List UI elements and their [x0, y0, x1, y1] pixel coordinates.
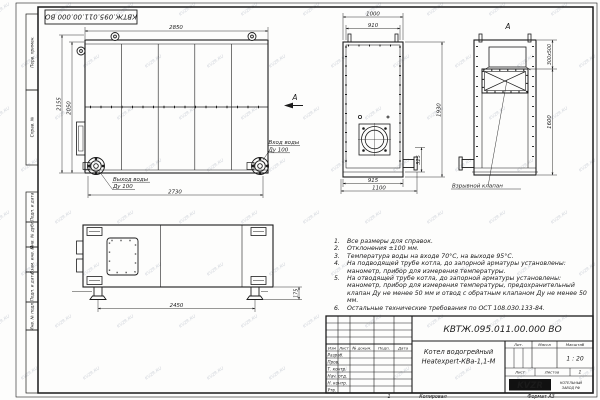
inlet-label-line2: Ду 100 — [268, 147, 289, 153]
tb-col-data: Дата — [397, 346, 409, 351]
tb-sheets-label: Листов — [544, 369, 560, 374]
dim-feet-height: 175 — [293, 289, 299, 298]
note-text: Остальные технические требования по ОСТ … — [343, 305, 591, 312]
note-text: Все размеры для справок. — [343, 238, 591, 245]
org-line2: ЗАВОД РФ — [562, 386, 580, 390]
tb-doc-number: КВТЖ.095.011.00.000 ВО — [443, 325, 561, 335]
tb-mass-label: Масса — [538, 342, 551, 347]
note-item: 1. Все размеры для справок. — [334, 238, 591, 245]
zone-number: 1 — [387, 394, 390, 400]
dim-bottom-span: 2450 — [170, 303, 184, 309]
tb-name-line2: Heatexpert-КВа-1,1-М — [422, 358, 496, 366]
view-a-label: А — [504, 22, 510, 31]
note-item: 4. На подводящей трубе котла, до запорно… — [334, 260, 591, 275]
tb-col-doc: № докум. — [351, 346, 371, 351]
side-view: 1000 910 1930 325 915 1100 — [341, 11, 445, 194]
note-number: 5. — [334, 275, 343, 305]
tb-row-nachotd: Нач. отд. — [328, 374, 348, 379]
tb-lit-label: Лит. — [513, 342, 523, 347]
doc-ref-number: КВТЖ.095.011.00.000 ВО — [45, 12, 138, 20]
outlet-label-line1: Выход воды — [113, 177, 149, 183]
view-a-pipe — [459, 157, 474, 170]
dim-side-bottom-inner: 915 — [368, 178, 379, 184]
feet — [72, 287, 268, 300]
dim-side-bottom-outer: 1100 — [372, 186, 386, 192]
view-direction-arrow: А — [284, 93, 303, 108]
format-label: Формат А3 — [527, 394, 554, 400]
note-text: На отводящей трубе котла, до запорной ар… — [343, 275, 591, 305]
logo-text: KVZR — [517, 381, 543, 391]
note-text: На подводящей трубе котла, до запорной а… — [343, 260, 591, 275]
stamp-label: Подп. и дата — [30, 192, 35, 221]
tb-col-podp: Подп. — [378, 346, 390, 351]
manufacturer-logo: KVZR КОТЕЛЬНЫЙ ЗАВОД РФ — [509, 379, 582, 391]
dim-front-height-outer: 2155 — [57, 97, 63, 111]
explosion-valve-callout: Взрывной клапан — [451, 80, 521, 189]
tb-row-utv: Утв. — [328, 388, 337, 393]
note-item: 5. На отводящей трубе котла, до запорной… — [334, 275, 591, 305]
note-item: 6. Остальные технические требования по О… — [334, 305, 591, 312]
dim-front-width: 2850 — [169, 25, 183, 31]
stamp-label: Подп. и дата — [30, 272, 35, 301]
dim-side-top-inner: 910 — [368, 23, 379, 29]
tb-scale-label: Масштаб — [566, 342, 585, 347]
note-number: 3. — [334, 253, 343, 260]
tb-sheets-value: 1 — [579, 369, 582, 375]
bottom-dims — [98, 287, 302, 312]
dim-front-bottom: 2730 — [168, 190, 182, 196]
corner-clips — [77, 228, 267, 285]
stamp-label: Взам. инв. № — [30, 245, 35, 274]
note-number: 1. — [334, 238, 343, 245]
service-hatch — [107, 238, 138, 275]
view-arrow-label: А — [291, 93, 297, 102]
drawing-canvas: Перв. примен. Справ. № Подп. и дата Инв.… — [0, 0, 600, 400]
side-dims — [341, 13, 445, 194]
outlet-label-line2: Ду 100 — [112, 184, 133, 190]
tb-row-prov: Пров. — [328, 360, 340, 365]
note-item: 2. Отклонения ±100 мм. — [334, 245, 591, 252]
tb-row-nkontr: Н. контр. — [328, 381, 348, 386]
inlet-flange — [247, 158, 269, 175]
tb-sheet-label: Лист — [514, 369, 526, 374]
explosion-valve-label: Взрывной клапан — [452, 183, 503, 189]
stamp-label: Перв. примен. — [30, 36, 35, 67]
outlet-flange — [83, 158, 105, 175]
sheet-frame — [16, 3, 597, 397]
bottom-view: 2450 175 — [72, 225, 302, 312]
inlet-label-line1: Вход воды — [269, 140, 300, 146]
tb-col-izm: Изм — [328, 346, 336, 351]
margin-stamps: Перв. примен. Справ. № Подп. и дата Инв.… — [26, 14, 38, 393]
technical-notes: 1. Все размеры для справок. 2. Отклонени… — [334, 238, 591, 312]
dim-side-height: 1930 — [437, 103, 443, 117]
note-number: 2. — [334, 245, 343, 252]
kopiroval-label: Копировал — [419, 394, 446, 400]
title-block: КВТЖ.095.011.00.000 ВО Котел водогрейный… — [326, 316, 593, 393]
note-text: Отклонения ±100 мм. — [343, 245, 591, 252]
stamp-label: Инв. № подл. — [30, 302, 35, 331]
tb-row-razrab: Разраб. — [328, 353, 344, 358]
dim-side-pipe: 325 — [416, 155, 422, 165]
tb-col-list: Лист — [338, 346, 350, 351]
tb-name-line1: Котел водогрейный — [424, 348, 494, 356]
stamp-label: Справ. № — [30, 116, 35, 137]
view-a: А — [451, 22, 557, 189]
front-view: 2850 2155 2050 2730 Выход воды Ду 100 Вх… — [57, 25, 304, 198]
dim-side-top-outer: 1000 — [366, 11, 380, 17]
stamp-label: Инв. № дубл. — [30, 220, 35, 249]
note-number: 6. — [334, 305, 343, 312]
dim-view-a-height: 1600 — [547, 115, 553, 129]
doc-ref-box: КВТЖ.095.011.00.000 ВО — [45, 10, 138, 24]
door-plate — [77, 122, 86, 155]
burner-flange — [358, 115, 391, 156]
tb-row-tkontr: Т. контр. — [328, 367, 347, 372]
explosion-valve — [482, 69, 528, 93]
note-number: 4. — [334, 260, 343, 275]
tb-scale-value: 1 : 20 — [566, 356, 583, 363]
dim-front-height-inner: 2050 — [67, 101, 73, 115]
outlet-callout: Выход воды Ду 100 — [99, 171, 150, 190]
dim-valve-size: 300x500 — [547, 44, 553, 65]
org-line1: КОТЕЛЬНЫЙ — [560, 380, 582, 385]
